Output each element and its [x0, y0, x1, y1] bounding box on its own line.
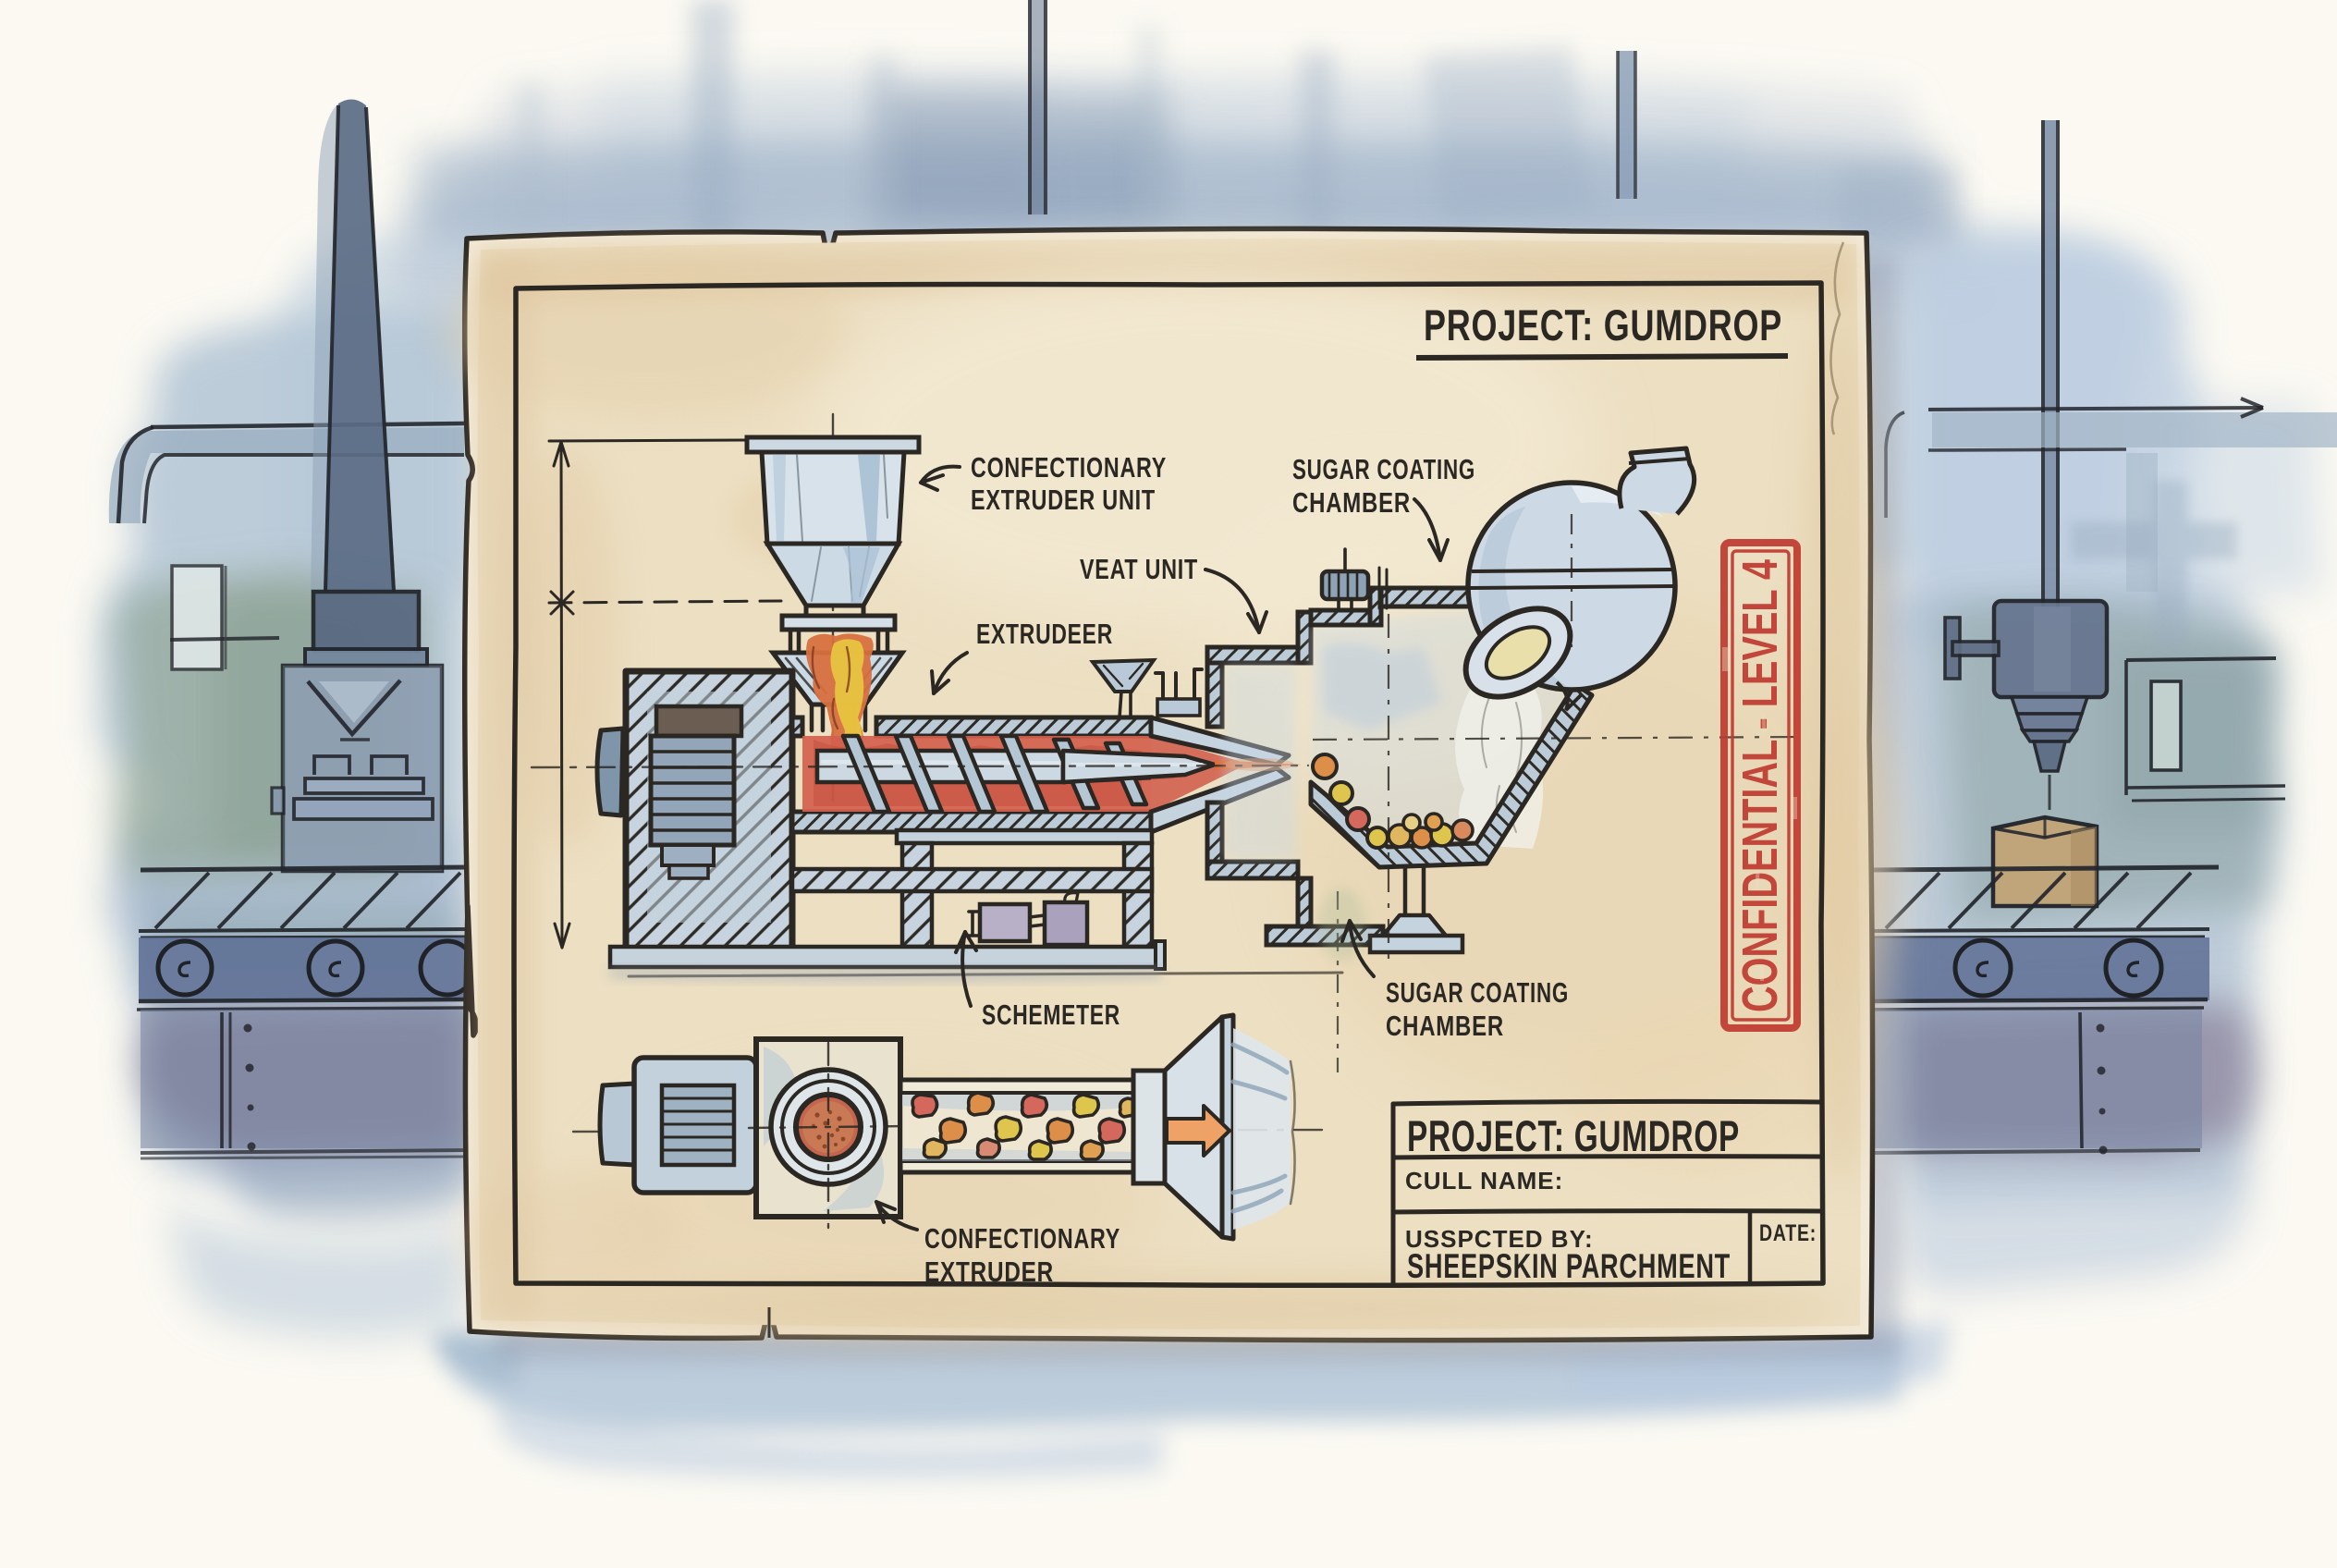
svg-text:SUGAR COATING: SUGAR COATING: [1386, 976, 1569, 1009]
svg-text:DATE:: DATE:: [1759, 1220, 1817, 1246]
svg-text:CONFECTIONARY: CONFECTIONARY: [971, 451, 1167, 484]
svg-text:EXTRUDER: EXTRUDER: [924, 1256, 1054, 1288]
svg-text:PROJECT: GUMDROP: PROJECT: GUMDROP: [1407, 1111, 1740, 1160]
svg-text:SCHEMETER: SCHEMETER: [982, 998, 1120, 1031]
svg-text:EXTRUDER UNIT: EXTRUDER UNIT: [971, 484, 1156, 516]
svg-text:SUGAR COATING: SUGAR COATING: [1292, 453, 1475, 485]
svg-text:PROJECT: GUMDROP: PROJECT: GUMDROP: [1424, 300, 1782, 349]
svg-text:CHAMBER: CHAMBER: [1292, 486, 1411, 519]
svg-text:CHAMBER: CHAMBER: [1386, 1010, 1504, 1042]
svg-text:CONFIDENTIAL - LEVEL 4: CONFIDENTIAL - LEVEL 4: [1732, 559, 1788, 1012]
svg-text:EXTRUDEER: EXTRUDEER: [976, 618, 1113, 650]
svg-text:CONFECTIONARY: CONFECTIONARY: [924, 1222, 1120, 1255]
svg-text:CULL NAME:: CULL NAME:: [1405, 1167, 1563, 1194]
svg-text:VEAT UNIT: VEAT UNIT: [1080, 553, 1198, 585]
svg-text:SHEEPSKIN PARCHMENT: SHEEPSKIN PARCHMENT: [1407, 1247, 1731, 1285]
